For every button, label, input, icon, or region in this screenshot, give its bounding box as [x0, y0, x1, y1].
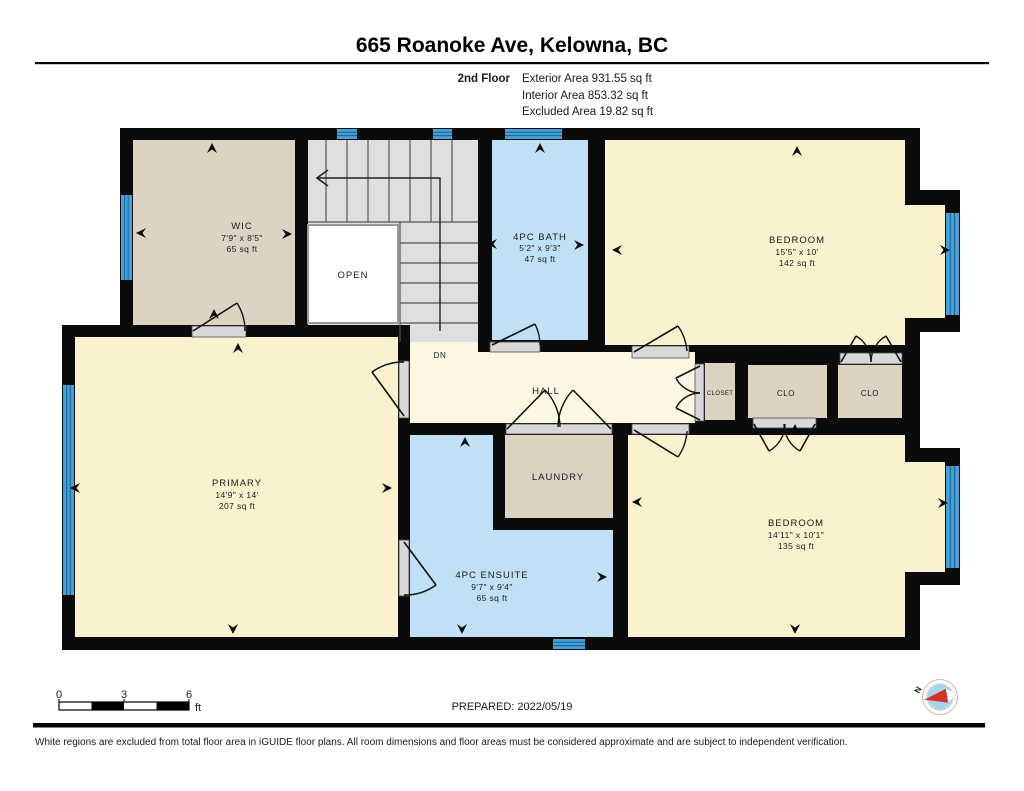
label-clo-left: CLO [777, 389, 795, 398]
door-sill-laundry [506, 424, 612, 434]
prepared-date: PREPARED: 2022/05/19 [452, 701, 573, 713]
room-wic [133, 140, 295, 325]
label-closet: CLOSET [707, 390, 734, 397]
label-bath-area: 47 sq ft [524, 254, 555, 264]
door-sill-bath [490, 342, 540, 352]
label-ensuite-dims: 9'7" x 9'4" [471, 582, 513, 592]
label-laundry: LAUNDRY [532, 472, 584, 483]
interior-area: Interior Area 853.32 sq ft [522, 90, 649, 102]
label-bedroom-bottom-dims: 14'11" x 10'1" [768, 530, 824, 540]
window-top-mid [433, 129, 452, 139]
window-top-left [337, 129, 357, 139]
label-bath-dims: 5'2" x 9'3" [519, 243, 561, 253]
window-wic-left [121, 195, 132, 280]
label-primary-area: 207 sq ft [219, 501, 255, 511]
door-sill-wic [192, 326, 246, 337]
label-bedroom-top-area: 142 sq ft [779, 258, 815, 268]
label-dn: DN [434, 351, 447, 360]
page-title: 665 Roanoke Ave, Kelowna, BC [356, 34, 668, 57]
label-primary-dims: 14'9" x 14' [215, 490, 258, 500]
window-ensuite-bottom [553, 639, 585, 649]
label-clo-right: CLO [861, 389, 879, 398]
scale-bar-segment [157, 702, 190, 710]
label-ensuite-name: 4PC ENSUITE [455, 570, 528, 581]
floor-label: 2nd Floor [458, 73, 511, 85]
window-bath [505, 129, 562, 139]
label-bedroom-bottom-name: BEDROOM [768, 518, 824, 529]
label-wic-area: 65 sq ft [226, 244, 257, 254]
footer-divider [33, 723, 985, 728]
header-divider [35, 62, 989, 64]
scale-bar-segment [92, 702, 125, 710]
excluded-area: Excluded Area 19.82 sq ft [522, 106, 654, 118]
label-ensuite-area: 65 sq ft [476, 593, 507, 603]
window-bedroom-top-right [946, 213, 959, 315]
label-bath-name: 4PC BATH [513, 232, 567, 243]
label-primary-name: PRIMARY [212, 478, 262, 489]
window-primary-left [63, 385, 74, 595]
label-bedroom-top-dims: 15'5" x 10' [775, 247, 818, 257]
door-sill-bedroom-bottom [632, 424, 689, 434]
floor-plan: WIC 7'9" x 8'5" 65 sq ft OPEN DN 4PC BAT… [62, 128, 960, 650]
floor-plan-page: 665 Roanoke Ave, Kelowna, BC 2nd Floor E… [0, 0, 1024, 791]
window-bedroom-bottom-right [946, 466, 959, 568]
label-wic-dims: 7'9" x 8'5" [221, 233, 263, 243]
door-sill-primary-hall [399, 361, 409, 418]
exterior-area: Exterior Area 931.55 sq ft [522, 73, 653, 85]
label-open: OPEN [338, 270, 369, 281]
label-wic-name: WIC [231, 221, 252, 232]
label-hall: HALL [532, 386, 560, 397]
disclaimer-text: White regions are excluded from total fl… [35, 737, 848, 748]
door-sill-primary-ensuite [399, 540, 409, 596]
label-bedroom-top-name: BEDROOM [769, 235, 825, 246]
scale-unit: ft [195, 702, 201, 714]
label-bedroom-bottom-area: 135 sq ft [778, 541, 814, 551]
